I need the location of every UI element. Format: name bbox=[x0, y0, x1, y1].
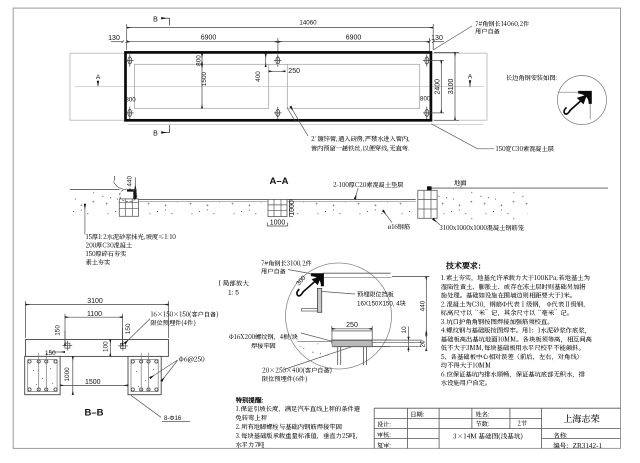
svg-text:440: 440 bbox=[420, 300, 427, 311]
svg-text:编号：ZR3142-1: 编号：ZR3142-1 bbox=[552, 441, 602, 450]
svg-text:16X150X150, 4块: 16X150X150, 4块 bbox=[357, 299, 406, 307]
svg-text:审核:: 审核: bbox=[376, 430, 391, 439]
svg-text:ø16钢筋: ø16钢筋 bbox=[388, 222, 411, 231]
svg-text:1: 5: 1: 5 bbox=[228, 289, 239, 296]
svg-text:8-Φ16: 8-Φ16 bbox=[164, 415, 182, 422]
svg-text:2节: 2节 bbox=[517, 419, 527, 428]
svg-text:5、各基础板中心相对误差（前后，左右，对角线）: 5、各基础板中心相对误差（前后，左右，对角线） bbox=[440, 352, 583, 361]
svg-text:1000: 1000 bbox=[64, 367, 71, 382]
svg-text:1500: 1500 bbox=[85, 379, 101, 386]
svg-text:水平力7吨: 水平力7吨 bbox=[236, 440, 265, 449]
svg-text:3100: 3100 bbox=[448, 79, 455, 95]
svg-text:3100x1000x1000混凝土钢筋笼: 3100x1000x1000混凝土钢筋笼 bbox=[439, 223, 524, 232]
svg-text:20: 20 bbox=[420, 340, 427, 348]
svg-text:I: I bbox=[114, 176, 116, 183]
svg-text:4.螺纹钢与基础版按图焊牢。用1：1水泥砂浆作底浆，: 4.螺纹钢与基础版按图焊牢。用1：1水泥砂浆作底浆， bbox=[441, 326, 591, 335]
svg-text:250: 250 bbox=[346, 322, 358, 329]
svg-text:2-100厚C20素混凝土垫层: 2-100厚C20素混凝土垫层 bbox=[333, 180, 404, 189]
svg-text:Φ16X200螺纹钢，4根/块: Φ16X200螺纹钢，4根/块 bbox=[229, 332, 299, 341]
svg-text:长边角钢安装如图:: 长边角钢安装如图: bbox=[506, 73, 558, 82]
svg-text:1500: 1500 bbox=[201, 71, 208, 86]
svg-text:均不得大于10MM: 均不得大于10MM bbox=[441, 361, 491, 370]
svg-text:姓名:: 姓名: bbox=[476, 409, 490, 418]
svg-text:250: 250 bbox=[288, 68, 300, 75]
svg-text:湿陷性黄土、膨胀土、或存在冻土层时则基础另加措: 湿陷性黄土、膨胀土、或存在冻土层时则基础另加措 bbox=[441, 282, 587, 291]
svg-text:1000: 1000 bbox=[289, 200, 296, 216]
svg-text:800: 800 bbox=[125, 96, 136, 103]
svg-text:14060: 14060 bbox=[299, 19, 317, 26]
svg-text:素土夯实: 素土夯实 bbox=[86, 258, 111, 267]
svg-text:6.应保证基坑内排水顺畅，保证基坑底部无积水，排: 6.应保证基坑内排水顺畅，保证基坑底部无积水，排 bbox=[441, 370, 586, 379]
svg-text:800: 800 bbox=[196, 55, 203, 66]
svg-text:日期:: 日期: bbox=[410, 409, 424, 418]
svg-text:焊接牢固: 焊接牢固 bbox=[251, 341, 276, 350]
svg-text:6900: 6900 bbox=[201, 35, 217, 42]
svg-text:3×14M 基础图(浅基坑): 3×14M 基础图(浅基坑) bbox=[452, 431, 523, 441]
svg-text:6900: 6900 bbox=[346, 35, 362, 42]
svg-text:3.坑口护角角钢按图焊接加强筋须校直。: 3.坑口护角角钢按图焊接加强筋须校直。 bbox=[440, 317, 554, 326]
svg-text:上海志荣: 上海志荣 bbox=[563, 411, 600, 425]
svg-text:施处理。基础如设施在围墙边则相距要大于1米。: 施处理。基础如设施在围墙边则相距要大于1米。 bbox=[441, 291, 576, 300]
svg-text:400: 400 bbox=[255, 71, 262, 82]
svg-text:150宽C30素混凝土层: 150宽C30素混凝土层 bbox=[496, 144, 555, 153]
svg-text:技术要求:: 技术要求: bbox=[445, 261, 481, 272]
svg-text:管内预留一趟铁丝,以便穿线,无直弯.: 管内预留一趟铁丝,以便穿线,无直弯. bbox=[311, 143, 410, 152]
svg-text:2.所有地脚螺栓与基础内钢筋焊接牢固: 2.所有地脚螺栓与基础内钢筋焊接牢固 bbox=[236, 422, 343, 431]
svg-text:130: 130 bbox=[108, 35, 120, 42]
svg-text:1.保证引坡长度，满足汽车直线上秤的条件避: 1.保证引坡长度，满足汽车直线上秤的条件避 bbox=[236, 404, 361, 413]
svg-text:标高尺寸以“米”记，其余尺寸以“毫米”记。: 标高尺寸以“米”记，其余尺寸以“毫米”记。 bbox=[441, 308, 573, 317]
svg-text:I 局部放大: I 局部放大 bbox=[219, 279, 250, 288]
svg-text:B: B bbox=[153, 130, 158, 137]
svg-text:150: 150 bbox=[54, 325, 61, 336]
svg-text:用户自备: 用户自备 bbox=[475, 27, 501, 36]
svg-text:800: 800 bbox=[420, 96, 431, 103]
svg-text:100: 100 bbox=[103, 341, 110, 352]
svg-text:3100: 3100 bbox=[87, 298, 103, 305]
svg-text:水设施用户自定。: 水设施用户自定。 bbox=[441, 378, 491, 387]
svg-text:2’ 镀锌管,通入磅房,严禁水进入管内,: 2’ 镀锌管,通入磅房,严禁水进入管内, bbox=[311, 134, 410, 143]
svg-text:B: B bbox=[153, 16, 158, 23]
svg-text:复审:: 复审: bbox=[377, 441, 391, 450]
svg-text:节数:: 节数: bbox=[476, 419, 490, 428]
svg-text:440: 440 bbox=[127, 176, 134, 187]
svg-text:A: A bbox=[468, 74, 473, 81]
svg-text:16×150×150(客户自备): 16×150×150(客户自备) bbox=[150, 310, 218, 319]
svg-text:限位预埋件(4件): 限位预埋件(4件) bbox=[150, 318, 195, 327]
svg-text:免转弯上秤: 免转弯上秤 bbox=[236, 413, 268, 422]
svg-text:10: 10 bbox=[401, 326, 408, 334]
svg-text:130: 130 bbox=[431, 35, 443, 42]
svg-text:150: 150 bbox=[125, 323, 132, 334]
svg-text:名称:: 名称: bbox=[553, 430, 567, 439]
svg-text:20×250×400(客户自备): 20×250×400(客户自备) bbox=[262, 365, 332, 374]
svg-text:基础板高出基坑地面10MM。各块板须等高，相互间高: 基础板高出基坑地面10MM。各块板须等高，相互间高 bbox=[441, 335, 592, 344]
svg-text:3.每块基础版承载重量标准值，垂直力25吨，: 3.每块基础版承载重量标准值，垂直力25吨， bbox=[235, 431, 362, 440]
svg-text:预埋限位挡板: 预埋限位挡板 bbox=[357, 290, 395, 299]
svg-text:2400: 2400 bbox=[435, 79, 442, 95]
svg-text:A: A bbox=[96, 74, 101, 81]
svg-text:限位预埋件(6件): 限位预埋件(6件) bbox=[262, 374, 307, 383]
svg-text:A–A: A–A bbox=[269, 176, 288, 187]
svg-text:设计:: 设计: bbox=[377, 420, 391, 429]
svg-text:1000: 1000 bbox=[270, 220, 286, 227]
svg-text:Φ6@250: Φ6@250 bbox=[179, 354, 205, 363]
svg-text:150: 150 bbox=[45, 350, 56, 357]
svg-text:1.素土夯实，地基允许承载力大于100KPa,若地基土为: 1.素土夯实，地基允许承载力大于100KPa,若地基土为 bbox=[441, 273, 591, 282]
svg-text:B–B: B–B bbox=[84, 408, 103, 419]
svg-text:地面: 地面 bbox=[454, 178, 466, 187]
svg-text:2.混凝土为C30，钢筋Φ代表Ⅰ级钢， Φ代表Ⅱ级钢，: 2.混凝土为C30，钢筋Φ代表Ⅰ级钢， Φ代表Ⅱ级钢， bbox=[441, 300, 590, 309]
svg-text:低不大于3MM,每块基础板用水平尺校平不能颠斜。: 低不大于3MM,每块基础板用水平尺校平不能颠斜。 bbox=[441, 343, 585, 352]
svg-text:用户自备: 用户自备 bbox=[261, 267, 287, 276]
svg-text:1100: 1100 bbox=[87, 311, 102, 318]
